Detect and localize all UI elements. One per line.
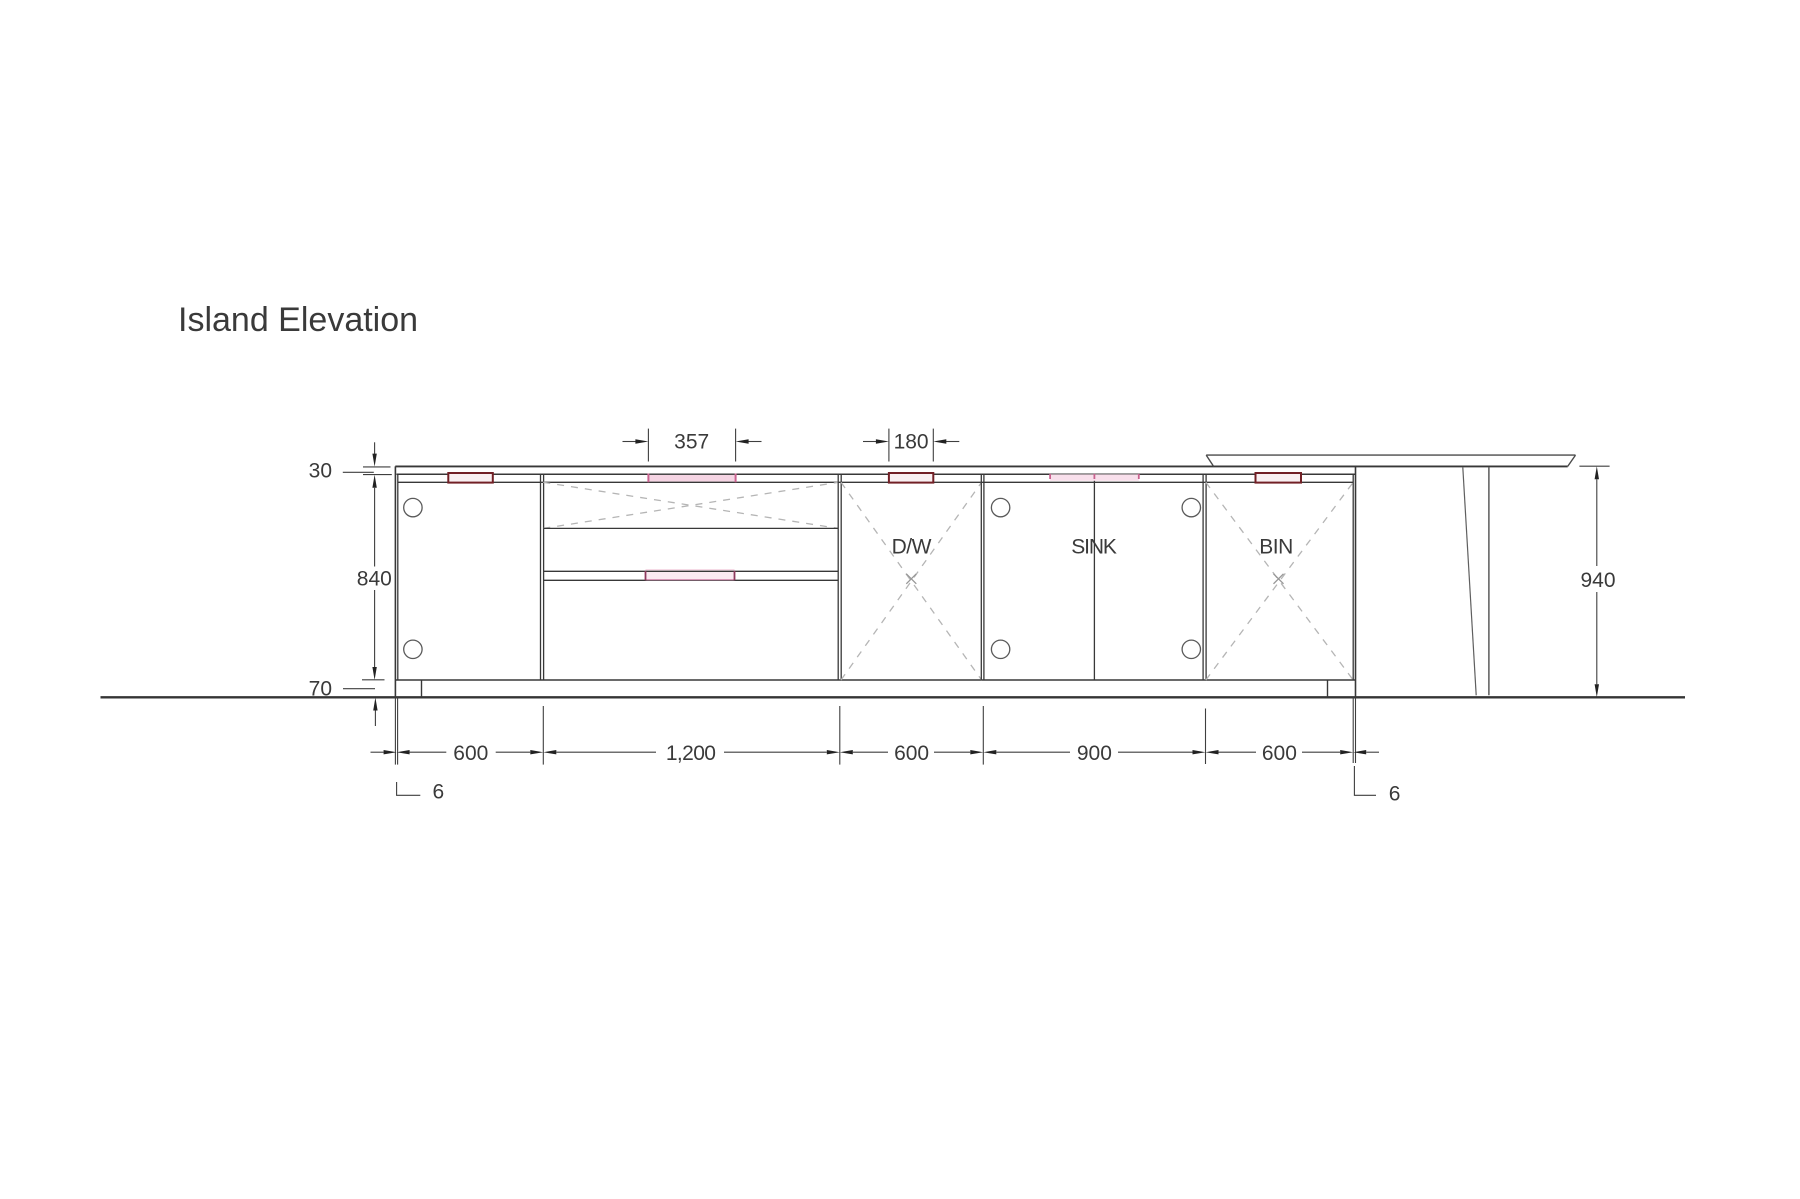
svg-text:1,200: 1,200 bbox=[666, 742, 716, 765]
svg-text:D/W: D/W bbox=[892, 536, 932, 559]
svg-text:900: 900 bbox=[1077, 742, 1112, 765]
svg-text:600: 600 bbox=[453, 742, 488, 765]
svg-text:6: 6 bbox=[1389, 783, 1401, 806]
svg-text:Island Elevation: Island Elevation bbox=[178, 301, 418, 339]
svg-text:357: 357 bbox=[674, 431, 709, 454]
svg-text:180: 180 bbox=[894, 431, 929, 454]
svg-text:600: 600 bbox=[1262, 742, 1297, 765]
svg-text:840: 840 bbox=[357, 568, 392, 591]
svg-text:940: 940 bbox=[1580, 569, 1615, 592]
svg-text:6: 6 bbox=[433, 781, 445, 804]
svg-text:70: 70 bbox=[309, 678, 332, 701]
svg-text:30: 30 bbox=[309, 460, 332, 483]
svg-text:SINK: SINK bbox=[1071, 536, 1117, 559]
svg-text:600: 600 bbox=[894, 742, 929, 765]
svg-text:BIN: BIN bbox=[1259, 536, 1293, 559]
